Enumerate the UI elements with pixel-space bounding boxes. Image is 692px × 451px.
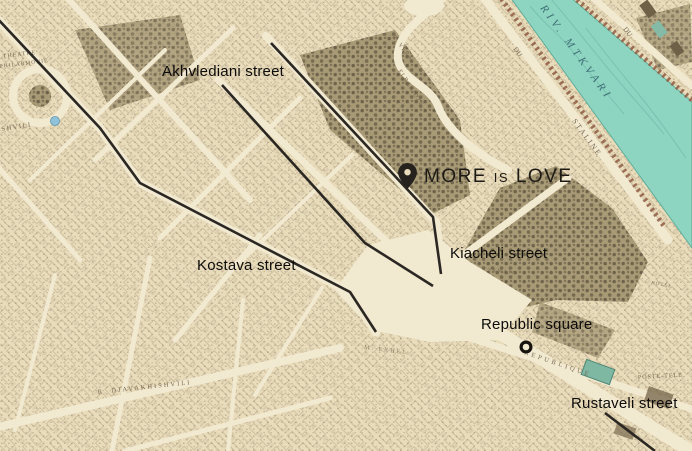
akhvlediani-street-label: Akhvlediani street [162, 63, 284, 80]
pond [51, 117, 60, 126]
rustaveli-street-label: Rustaveli street [571, 395, 678, 412]
kostava-street-label: Kostava street [197, 257, 296, 274]
map-image: THEATRE PHILARMONIE SHVILI R. VERA ELBAK… [0, 0, 692, 451]
republic-square-label: Republic square [481, 316, 592, 333]
map-canvas[interactable]: THEATRE PHILARMONIE SHVILI R. VERA ELBAK… [0, 0, 692, 451]
venue-label: MORE is LOVE [424, 166, 573, 188]
kiacheli-street-label: Kiacheli street [450, 245, 547, 262]
